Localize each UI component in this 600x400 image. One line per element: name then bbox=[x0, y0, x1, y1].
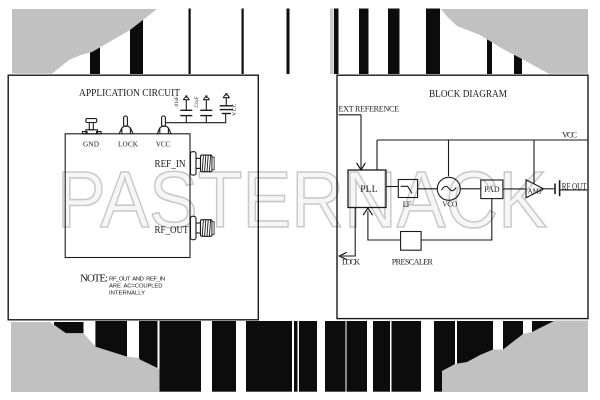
svg-text:RF OUT: RF OUT bbox=[562, 183, 587, 193]
svg-text:PASTERNACK: PASTERNACK bbox=[57, 155, 547, 244]
svg-text:NOTE:: NOTE: bbox=[80, 273, 108, 285]
svg-text:RF_OUT: RF_OUT bbox=[155, 225, 189, 236]
svg-text:LOCK: LOCK bbox=[118, 141, 139, 149]
svg-text:BLOCK DIAGRAM: BLOCK DIAGRAM bbox=[429, 89, 508, 100]
svg-text:VCC: VCC bbox=[562, 129, 577, 139]
svg-text:RF_OUT AND REF_IN: RF_OUT AND REF_IN bbox=[109, 276, 165, 282]
svg-text:VCC: VCC bbox=[232, 103, 238, 116]
svg-text:APPLICATION CIRCUIT: APPLICATION CIRCUIT bbox=[79, 88, 181, 99]
svg-text:VCC: VCC bbox=[156, 141, 171, 149]
svg-text:INTERNALLY: INTERNALLY bbox=[109, 290, 145, 296]
svg-text:PLL: PLL bbox=[360, 184, 377, 195]
svg-text:ARE AC=COUPLED: ARE AC=COUPLED bbox=[109, 283, 163, 289]
svg-text:LOCK: LOCK bbox=[342, 258, 360, 267]
svg-text:VCO: VCO bbox=[442, 200, 458, 209]
svg-text:22uF: 22uF bbox=[195, 96, 200, 108]
svg-text:PAD: PAD bbox=[484, 185, 500, 194]
svg-text:AMP: AMP bbox=[528, 187, 544, 196]
svg-text:PRESCALER: PRESCALER bbox=[392, 258, 434, 267]
svg-text:EXT REFERENCE: EXT REFERENCE bbox=[339, 104, 400, 113]
svg-text:GND: GND bbox=[83, 141, 99, 149]
svg-text:.01uF: .01uF bbox=[175, 96, 180, 108]
svg-text:LF: LF bbox=[403, 200, 412, 209]
svg-text:REF_IN: REF_IN bbox=[155, 159, 186, 170]
